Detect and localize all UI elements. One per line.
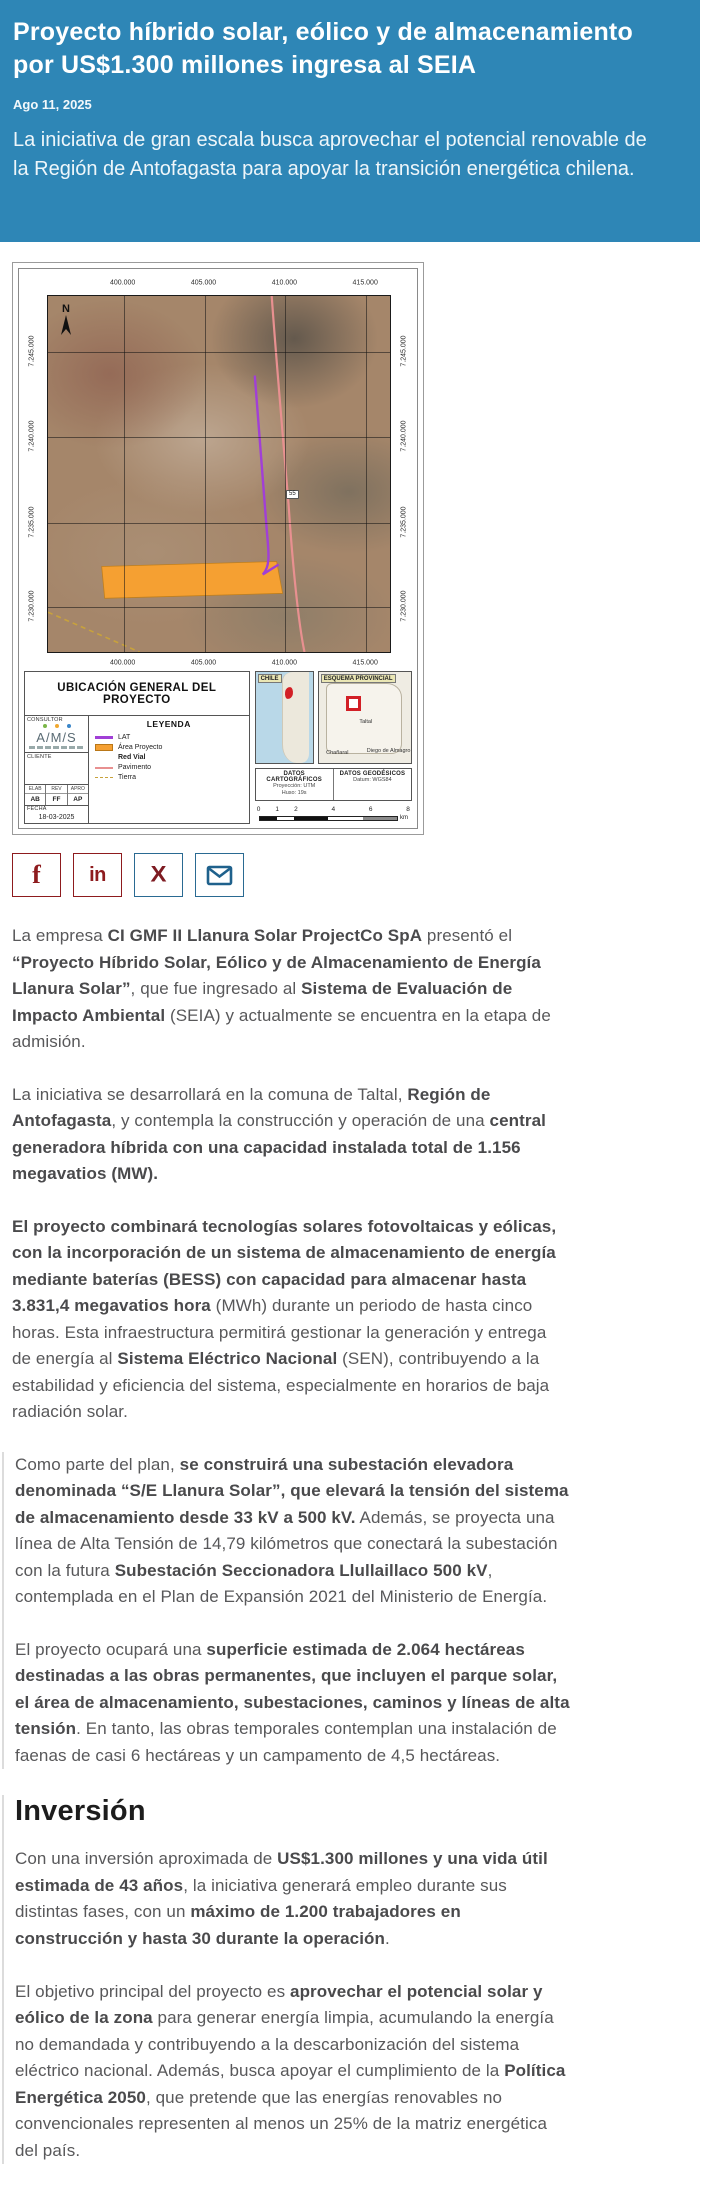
coordinate-label: 7.230.000: [401, 591, 408, 622]
provincial-inset-map: ESQUEMA PROVINCIAL Taltal Chañaral Diego…: [318, 671, 412, 764]
facebook-share-button[interactable]: f: [12, 853, 61, 897]
graticule-line: [205, 296, 206, 652]
article-section: InversiónCon una inversión aproximada de…: [2, 1795, 570, 2164]
cliente-label: CLIENTE: [25, 753, 88, 760]
place-label: Chañaral: [326, 750, 348, 756]
article-header: Proyecto híbrido solar, eólico y de alma…: [0, 0, 700, 242]
article-paragraph: La iniciativa se desarrollará en la comu…: [12, 1082, 570, 1188]
coordinate-label: 415.000: [353, 280, 378, 287]
section-heading: Inversión: [15, 1795, 570, 1828]
graticule-line: [48, 352, 390, 353]
article-paragraph: Con una inversión aproximada de US$1.300…: [15, 1846, 570, 1952]
fecha-value: 18-03-2025: [25, 812, 88, 821]
article-subtitle: La iniciativa de gran escala busca aprov…: [13, 126, 661, 184]
coordinate-label: 7.240.000: [401, 420, 408, 451]
purple-line-swatch-icon: [95, 734, 113, 741]
map-outer-frame: N 55 UBICACIÓN GENERAL DEL PROYECTO CO: [12, 262, 424, 835]
article-body: La empresa CI GMF II Llanura Solar Proje…: [0, 923, 582, 2164]
consultant-logo: A/M/S: [25, 723, 88, 753]
map-scale-bar: 012468 km: [255, 805, 412, 824]
approval-table: ELABABREVFFAPROAP: [25, 785, 88, 806]
map-legend: LEYENDA LATÁrea ProyectoRed VialPaviment…: [89, 716, 249, 823]
page-title: Proyecto híbrido solar, eólico y de alma…: [13, 16, 661, 81]
place-label: Taltal: [359, 719, 372, 725]
consultor-label: CONSULTOR: [25, 716, 88, 723]
coordinate-label: 7.245.000: [401, 335, 408, 366]
coordinate-label: 7.230.000: [29, 591, 36, 622]
graticule-line: [48, 437, 390, 438]
article-paragraph: La empresa CI GMF II Llanura Solar Proje…: [12, 923, 570, 1056]
coordinate-label: 7.235.000: [29, 506, 36, 537]
graticule-line: [48, 523, 390, 524]
legend-item: Área Proyecto: [95, 744, 243, 751]
linkedin-share-button[interactable]: in: [73, 853, 122, 897]
map-sheet: N 55 UBICACIÓN GENERAL DEL PROYECTO CO: [18, 268, 418, 829]
legend-item: LAT: [95, 734, 243, 741]
cliente-box: [25, 760, 88, 785]
graticule-line: [285, 296, 286, 652]
coordinate-label: 7.245.000: [29, 335, 36, 366]
dash-line-swatch-icon: [95, 774, 113, 781]
linkedin-icon: in: [89, 865, 106, 885]
article-paragraph: El objetivo principal del proyecto es ap…: [15, 1979, 570, 2165]
provincial-inset-label: ESQUEMA PROVINCIAL: [321, 674, 396, 683]
share-buttons-row: finX: [12, 853, 716, 897]
article-paragraph: Como parte del plan, se construirá una s…: [15, 1452, 570, 1611]
pink-line-swatch-icon: [95, 764, 113, 771]
legend-item: Red Vial: [95, 754, 243, 761]
coordinate-label: 400.000: [110, 280, 135, 287]
coordinate-label: 410.000: [272, 280, 297, 287]
orange-box-swatch-icon: [95, 744, 113, 751]
x-share-button[interactable]: X: [134, 853, 183, 897]
email-icon: [206, 865, 233, 886]
lat-transmission-line: [255, 376, 279, 575]
consultor-panel: CONSULTOR A/M/S CLIENTE ELABABREVFFAPROA…: [25, 716, 89, 823]
legend-title: LEYENDA: [95, 719, 243, 729]
coordinate-label: 410.000: [272, 660, 297, 667]
project-site-marker: [346, 696, 361, 711]
coordinate-label: 405.000: [191, 660, 216, 667]
map-title-block: UBICACIÓN GENERAL DEL PROYECTO CONSULTOR…: [24, 671, 412, 824]
legend-item: Pavimento: [95, 764, 243, 771]
legend-item: Tierra: [95, 774, 243, 781]
coordinate-label: 405.000: [191, 280, 216, 287]
x-icon: X: [150, 864, 166, 886]
project-area-polygon: [102, 562, 283, 599]
publish-date: Ago 11, 2025: [13, 97, 686, 112]
map-sheet-title: UBICACIÓN GENERAL DEL PROYECTO: [25, 672, 249, 716]
coordinate-label: 7.240.000: [29, 420, 36, 451]
cartographic-data-box: DATOS CARTOGRÁFICOS Proyección: UTM Huso…: [255, 768, 412, 801]
place-label: Diego de Almagro: [367, 748, 411, 754]
paved-road-line: [272, 296, 305, 652]
dirt-road-line: [48, 612, 139, 652]
coordinate-label: 415.000: [353, 660, 378, 667]
project-location-map: N 55 UBICACIÓN GENERAL DEL PROYECTO CO: [12, 262, 424, 835]
coordinate-label: 7.235.000: [401, 506, 408, 537]
satellite-map-area: N 55: [47, 295, 391, 653]
chile-landmass: [282, 672, 308, 763]
facebook-icon: f: [32, 862, 41, 888]
fecha-box: FECHA 18-03-2025: [25, 806, 88, 823]
legend-spacer: [95, 754, 113, 761]
route-number-chip: 55: [286, 490, 299, 499]
email-share-button[interactable]: [195, 853, 244, 897]
graticule-line: [366, 296, 367, 652]
chile-inset-map: CHILE: [255, 671, 314, 764]
article-paragraph: El proyecto ocupará una superficie estim…: [15, 1637, 570, 1770]
coordinate-label: 400.000: [110, 660, 135, 667]
chile-inset-label: CHILE: [258, 674, 282, 683]
map-feature-overlay: [48, 296, 390, 652]
graticule-line: [48, 607, 390, 608]
article-paragraph: El proyecto combinará tecnologías solare…: [12, 1214, 570, 1426]
graticule-line: [124, 296, 125, 652]
article-section: La empresa CI GMF II Llanura Solar Proje…: [12, 923, 570, 1426]
article-section: Como parte del plan, se construirá una s…: [2, 1452, 570, 1770]
